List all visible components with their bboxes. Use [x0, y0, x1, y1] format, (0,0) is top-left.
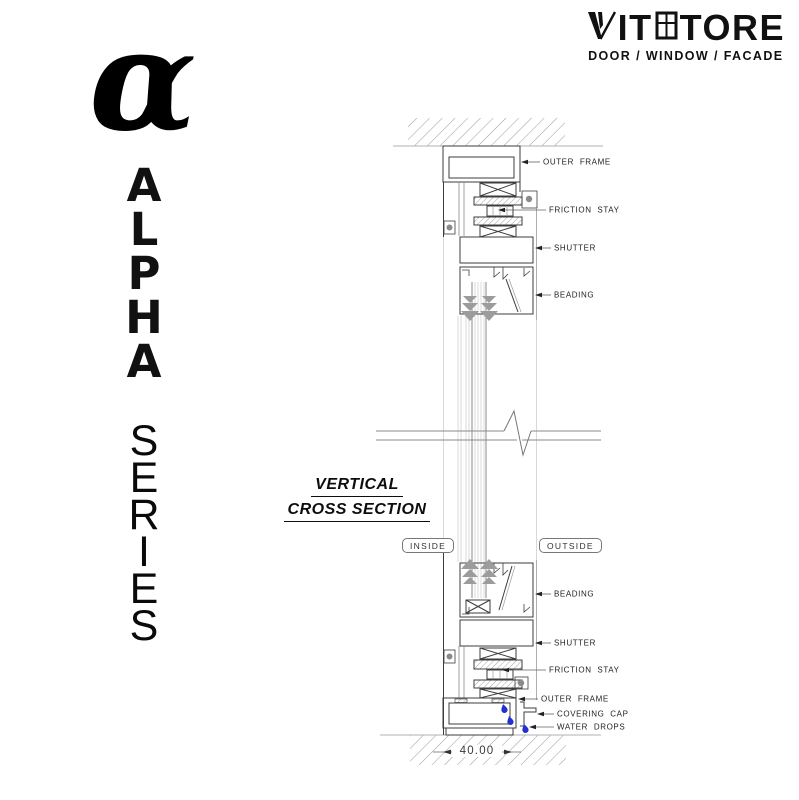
- top-assembly-profiles: [443, 146, 537, 320]
- label-shutter-bottom: SHUTTER: [554, 639, 596, 648]
- top-glazing-gaskets: [461, 296, 498, 321]
- section-title-line1: VERTICAL: [311, 476, 403, 497]
- label-outer-frame-top: OUTER FRAME: [543, 158, 611, 167]
- page: IT TORE DOOR / WINDOW / FACADE α A L P H…: [0, 0, 799, 800]
- label-beading-bottom: BEADING: [554, 590, 594, 599]
- label-covering-cap: COVERING CAP: [557, 710, 629, 719]
- label-friction-stay-bottom: FRICTION STAY: [549, 666, 620, 675]
- dimension-value: 40.00: [452, 745, 502, 757]
- label-friction-stay-top: FRICTION STAY: [549, 206, 620, 215]
- label-water-drops: WATER DROPS: [557, 723, 625, 732]
- inside-badge: INSIDE: [402, 538, 454, 553]
- break-line-symbol: [376, 411, 601, 455]
- profile-continuation-lines: [444, 237, 537, 562]
- wall-hatch-top: [393, 118, 603, 146]
- label-outer-frame-bottom: OUTER FRAME: [541, 695, 609, 704]
- label-beading-top: BEADING: [554, 291, 594, 300]
- label-shutter-top: SHUTTER: [554, 244, 596, 253]
- vertical-cross-section-drawing: [0, 0, 799, 800]
- section-title-line2: CROSS SECTION: [284, 501, 431, 522]
- outside-badge: OUTSIDE: [539, 538, 602, 553]
- section-title: VERTICAL CROSS SECTION: [268, 476, 446, 522]
